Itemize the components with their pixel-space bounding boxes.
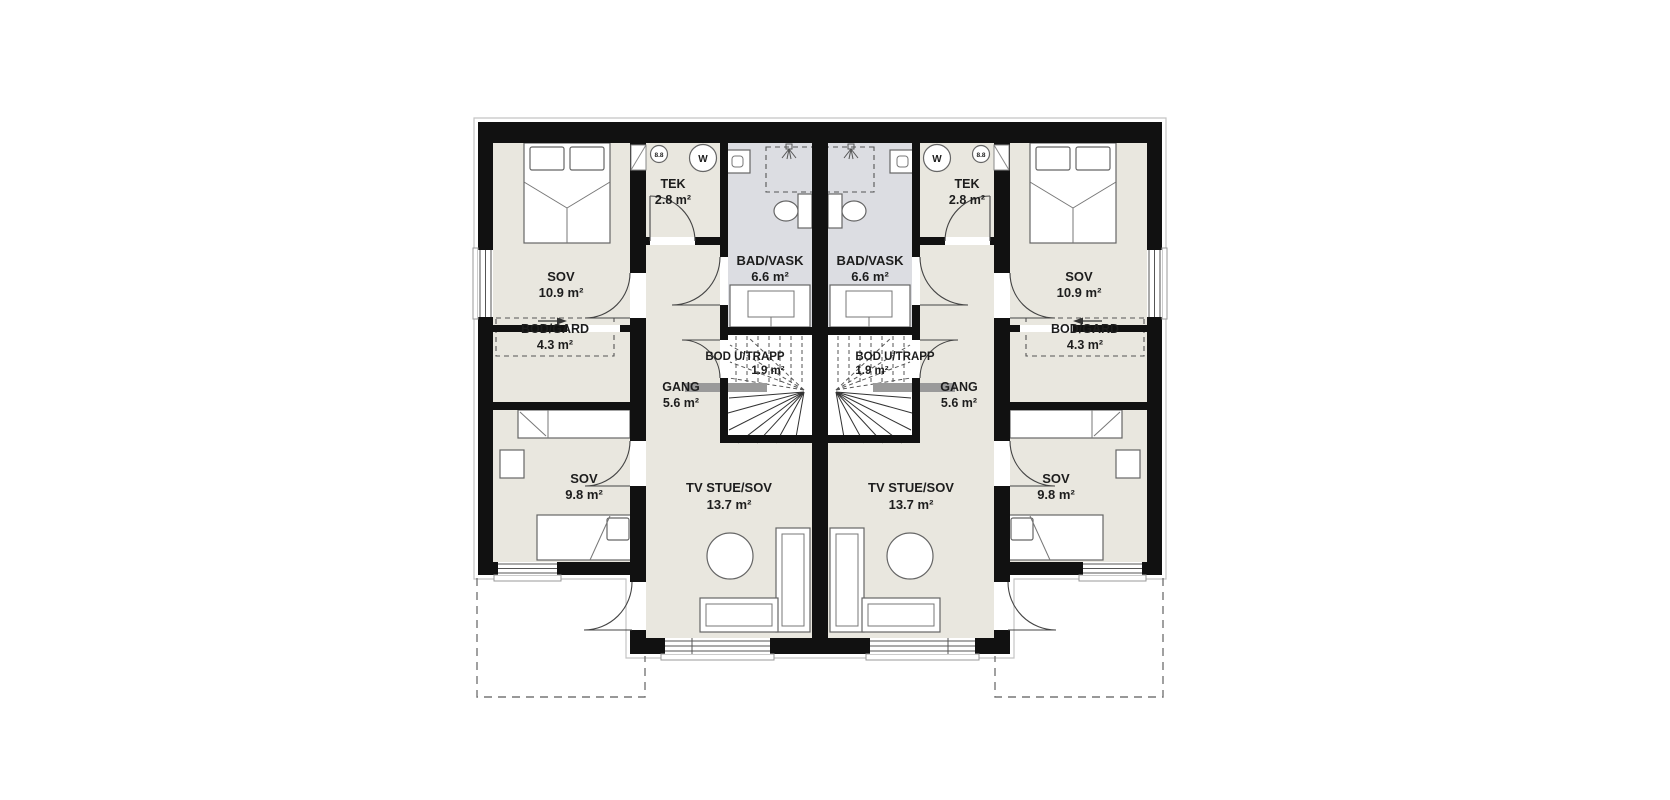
room-label-bod-gard-right: BOD/GARD [1051,322,1119,336]
water-heater-label-left: 8.8 [654,152,663,159]
room-label-bad-vask-right: BAD/VASK [837,253,905,268]
room-area-sov-large-right: 10.9 m² [1057,285,1102,300]
unit-right [820,122,1167,697]
room-area-gang-left: 5.6 m² [663,396,699,410]
room-area-bod-gard-left: 4.3 m² [537,338,573,352]
room-label-sov-large-right: SOV [1065,269,1093,284]
room-label-bod-gard-left: BOD/GARD [521,322,589,336]
room-label-sov-small-left: SOV [570,471,598,486]
washing-machine-label-left: W [698,154,708,165]
room-area-bod-u-trapp-left: 1.9 m² [751,365,784,377]
room-area-bod-u-trapp-right: 1.9 m² [855,365,888,377]
room-label-bod-u-trapp-right: BOD U/TRAPP [855,351,935,363]
room-area-bad-vask-right: 6.6 m² [851,269,889,284]
room-label-tek-right: TEK [955,177,980,191]
floor-plan-page: SOV 10.9 m² BOD/GARD 4.3 m² SOV 9.8 m² T… [0,0,1670,800]
room-label-bod-u-trapp-left: BOD U/TRAPP [705,351,785,363]
room-label-tv-stue-right: TV STUE/SOV [868,480,954,495]
room-label-tv-stue-left: TV STUE/SOV [686,480,772,495]
room-area-tek-right: 2.8 m² [949,193,985,207]
room-label-gang-left: GANG [662,380,700,394]
room-area-sov-small-left: 9.8 m² [565,487,603,502]
room-area-gang-right: 5.6 m² [941,396,977,410]
room-area-sov-small-right: 9.8 m² [1037,487,1075,502]
room-label-sov-small-right: SOV [1042,471,1070,486]
room-area-bod-gard-right: 4.3 m² [1067,338,1103,352]
room-area-tv-stue-right: 13.7 m² [889,497,934,512]
washing-machine-label-right: W [932,154,942,165]
room-label-tek-left: TEK [661,177,686,191]
water-heater-label-right: 8.8 [976,152,985,159]
floor-plan-drawing: SOV 10.9 m² BOD/GARD 4.3 m² SOV 9.8 m² T… [0,0,1670,800]
room-area-tv-stue-left: 13.7 m² [707,497,752,512]
room-area-bad-vask-left: 6.6 m² [751,269,789,284]
room-area-tek-left: 2.8 m² [655,193,691,207]
room-label-gang-right: GANG [940,380,978,394]
room-area-sov-large-left: 10.9 m² [539,285,584,300]
unit-left [473,122,820,697]
room-label-sov-large-left: SOV [547,269,575,284]
room-label-bad-vask-left: BAD/VASK [737,253,805,268]
